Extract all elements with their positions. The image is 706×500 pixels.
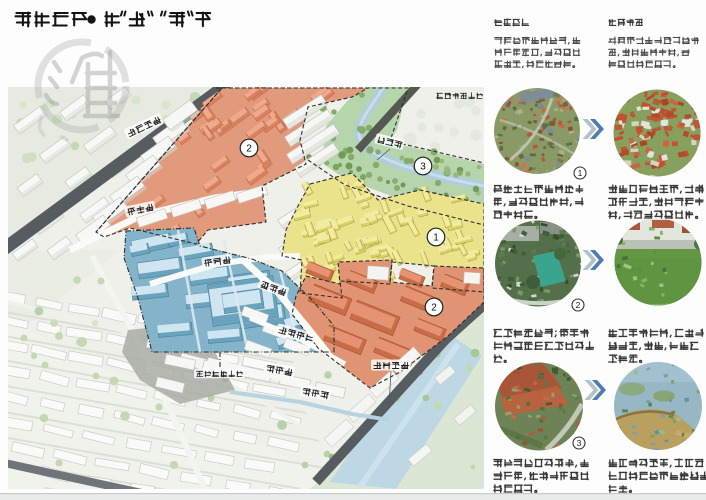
svg-text:1: 1 — [578, 168, 583, 178]
svg-text:1: 1 — [433, 232, 439, 243]
svg-text:3: 3 — [420, 161, 426, 172]
svg-text:3: 3 — [577, 438, 582, 448]
svg-text:2: 2 — [431, 302, 437, 313]
svg-text:2: 2 — [576, 300, 581, 310]
svg-text:2: 2 — [246, 143, 252, 154]
